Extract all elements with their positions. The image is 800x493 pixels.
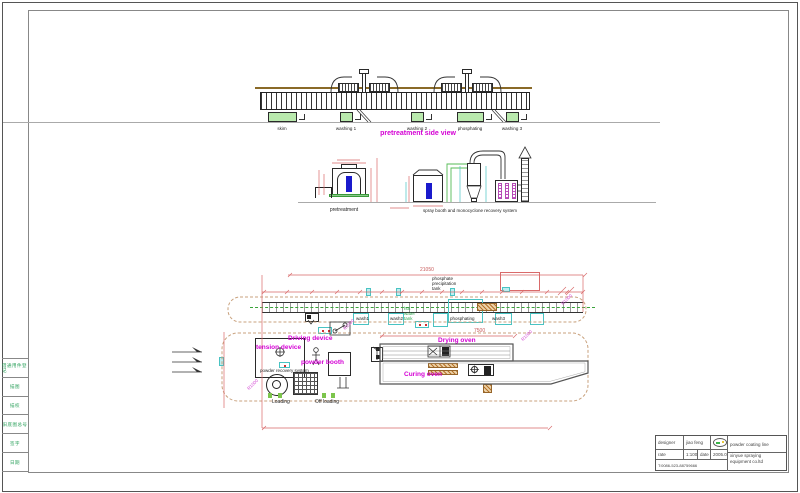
side-view-ducts [331,77,506,122]
company-name: xinyue spraying equipment co.ltd [728,453,786,471]
dim-total-label: 21050 [420,268,434,273]
dim-oven-label: 7500 [474,329,485,334]
spray-booth-caption: spray booth and monocyclone recovery sys… [400,208,540,213]
powder-booth-label: powder booth [301,359,344,366]
elevation-ducts [406,147,531,202]
side-view-title: pretreatment side view [368,130,468,137]
stack-arrow-icon [519,147,531,158]
elevation-red-dims [319,158,443,208]
stand-symbol [337,377,349,388]
drying-burner-symbol [428,346,450,357]
cyclone-cone [467,186,481,198]
tension-device-label: tension device [256,344,301,351]
phosphate-note-line: tank [432,286,441,291]
title-block: designer jiao feng rate 1:100 date 2005.… [655,435,787,471]
green-note-line: tank [404,316,413,321]
plan-tank-label: wash2 [390,316,403,321]
logo-yellow-mark [722,441,724,443]
loading-label: Loading [272,400,290,405]
pretreatment-caption: pretreatment [314,208,374,213]
station-label: washing 1 [326,126,366,131]
offloading-label: Off loading [315,400,339,405]
linework-layer [0,0,800,493]
section-flag-arrows [192,347,202,372]
date-label: date [698,450,711,460]
logo-green-mark [716,442,720,444]
logo-cell [711,436,728,450]
plan-oven-outlines [380,344,588,384]
plan-tank-label: phosphating [450,316,475,321]
rate-label: rate [656,450,684,460]
plan-tank-label: wash1 [356,316,369,321]
rate-value: 1:100 [684,450,698,460]
designer-label: designer [656,436,684,450]
cad-drawing-sheet: 借通用件登记 描图 描校 旧底图总号 签字 日期 [0,0,800,493]
drying-oven-label: Drying oven [438,337,476,344]
operator-figure [314,348,319,353]
plan-tank-label: wash3 [492,316,505,321]
station-label: skim [262,126,302,131]
date-value: 2005.07 [711,450,728,460]
station-label: washing 3 [492,126,532,131]
product-name: powder coating line [728,436,786,453]
curing-oven-label: Curing oven [404,371,442,378]
company-logo-icon [713,438,727,447]
designer-value: jiao feng [684,436,711,450]
company-name-line2: equipment co.ltd [730,459,786,465]
driving-device-label: Driving device [288,335,332,342]
phone-number: T:0086-523-88759666 [656,460,728,471]
powder-recovery-label: powder recovery system [260,368,309,373]
